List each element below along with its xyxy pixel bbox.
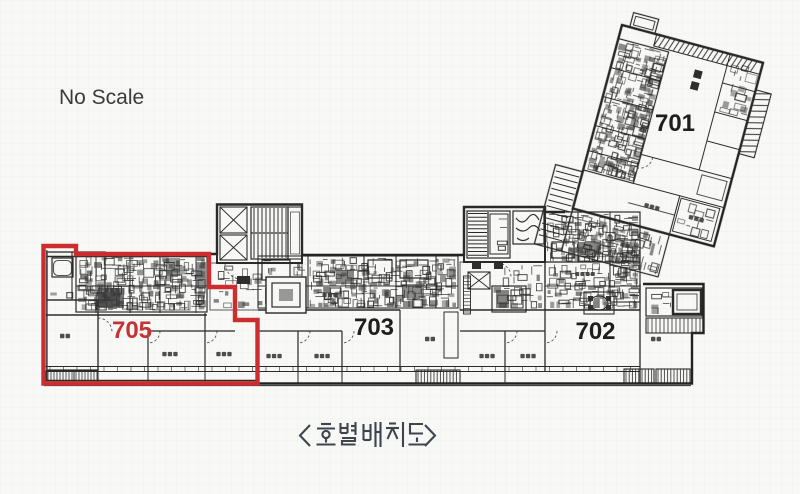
svg-text:705: 705 [112, 317, 152, 344]
svg-text:701: 701 [655, 110, 695, 137]
svg-text:703: 703 [354, 314, 394, 341]
svg-text:No Scale: No Scale [59, 86, 144, 109]
svg-text:702: 702 [575, 318, 615, 345]
